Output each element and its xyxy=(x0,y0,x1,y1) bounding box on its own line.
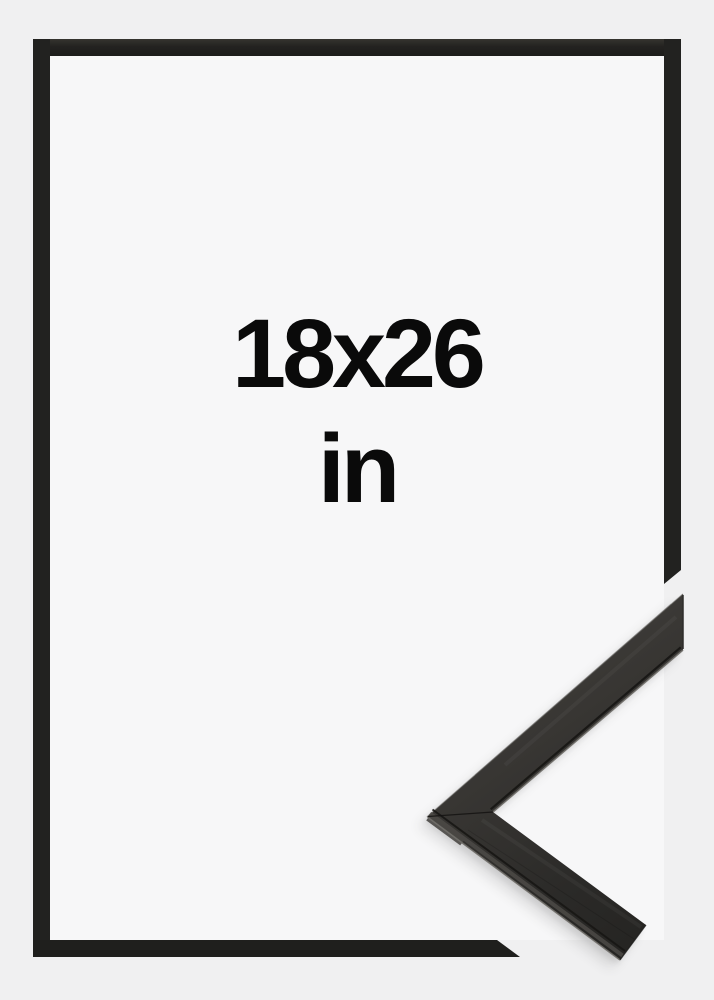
size-unit-text: in xyxy=(0,411,714,526)
frame-product-photo: 18x26 in xyxy=(0,0,714,1000)
frame-outline-bottom xyxy=(33,940,520,957)
size-label: 18x26 in xyxy=(0,296,714,526)
frame-outline-top xyxy=(33,39,681,56)
size-dimensions-text: 18x26 xyxy=(0,296,714,411)
